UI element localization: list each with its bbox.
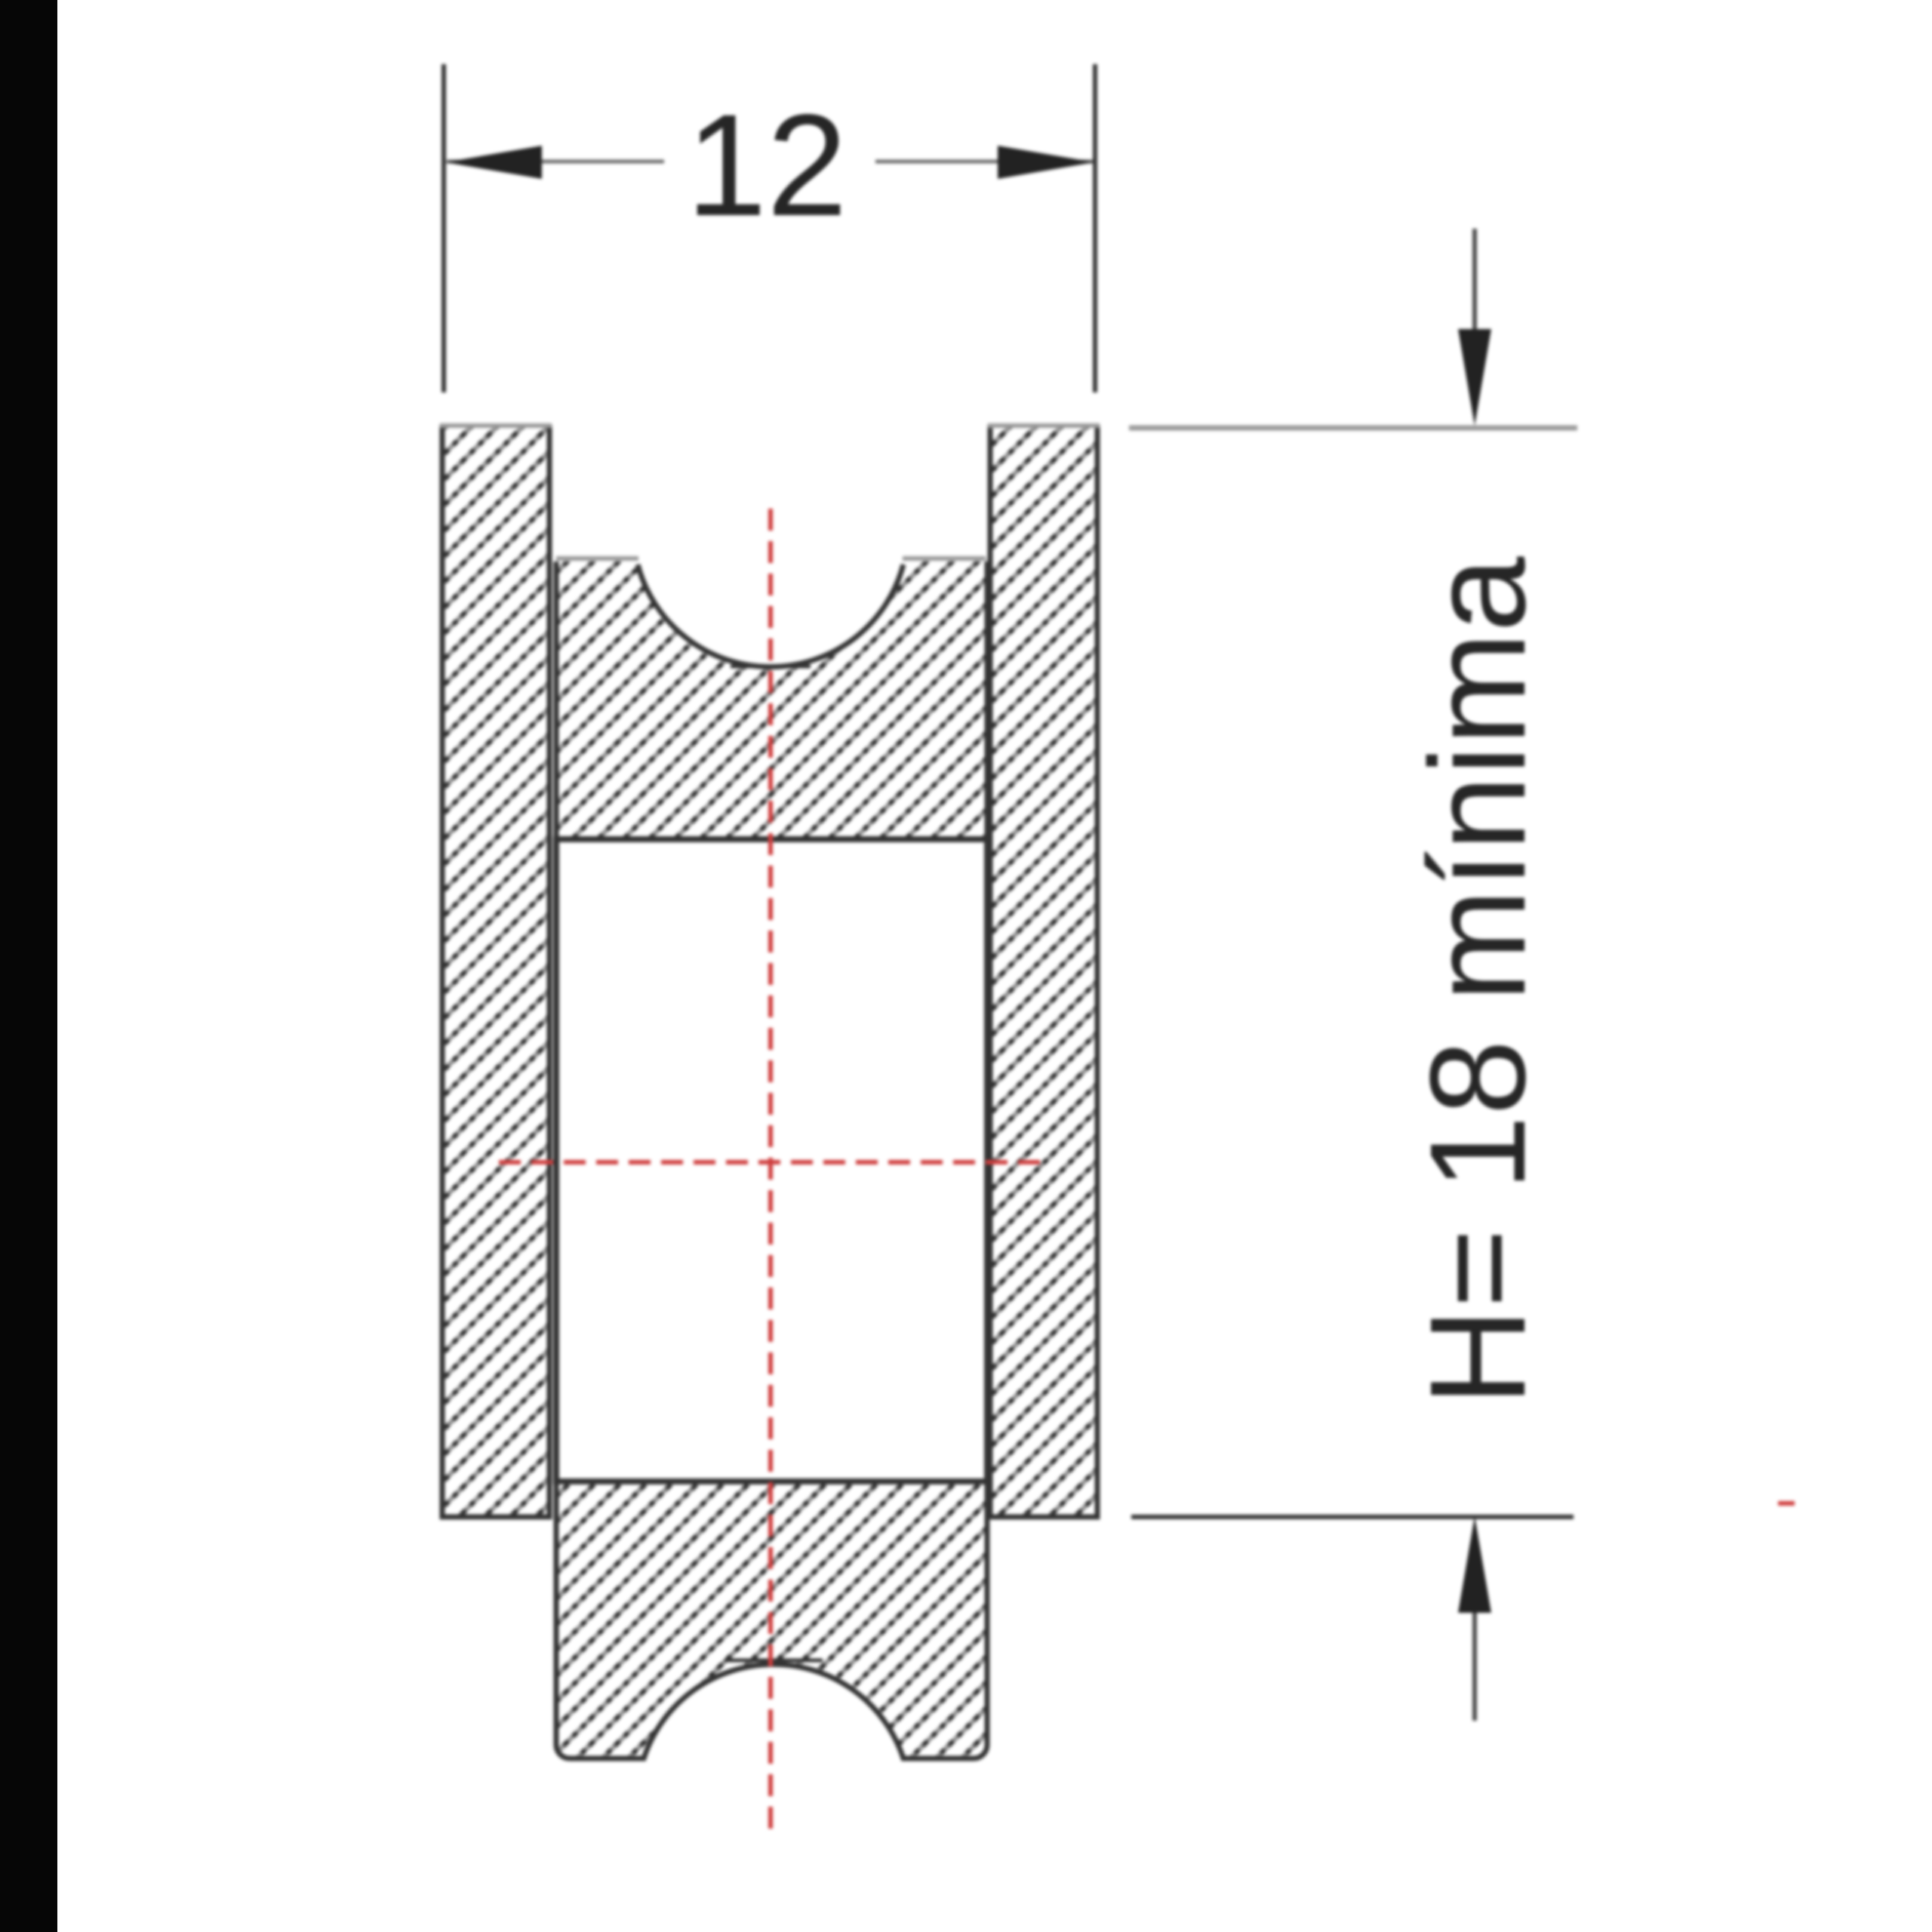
svg-text:12: 12: [686, 84, 848, 246]
svg-text:H= 18 mínima: H= 18 mínima: [1402, 556, 1554, 1406]
